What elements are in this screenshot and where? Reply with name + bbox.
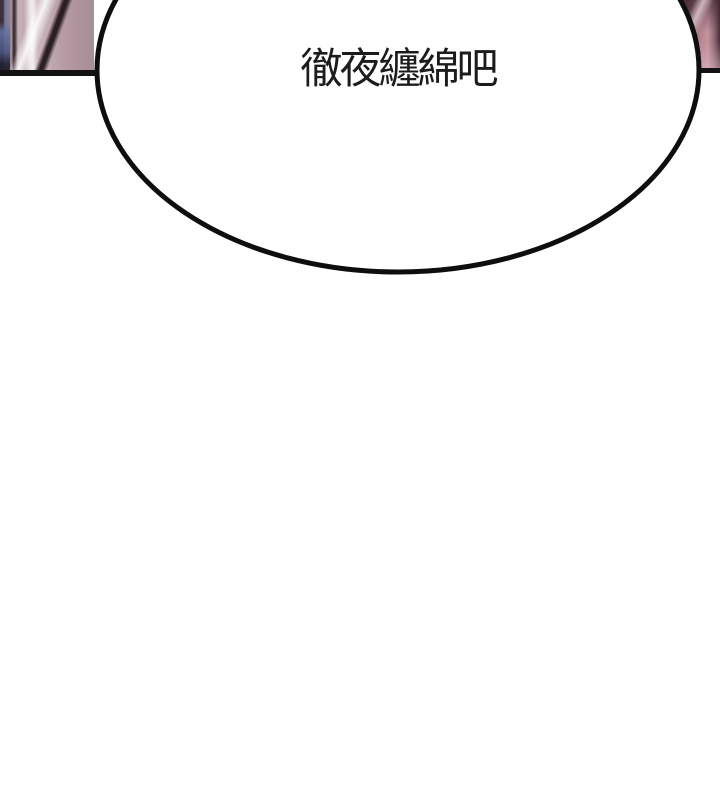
speech-bubble-text: 徹夜纏綿吧	[300, 48, 495, 90]
comic-panel: 徹夜纏綿吧	[0, 0, 720, 800]
speech-bubble-shape	[97, 0, 699, 272]
